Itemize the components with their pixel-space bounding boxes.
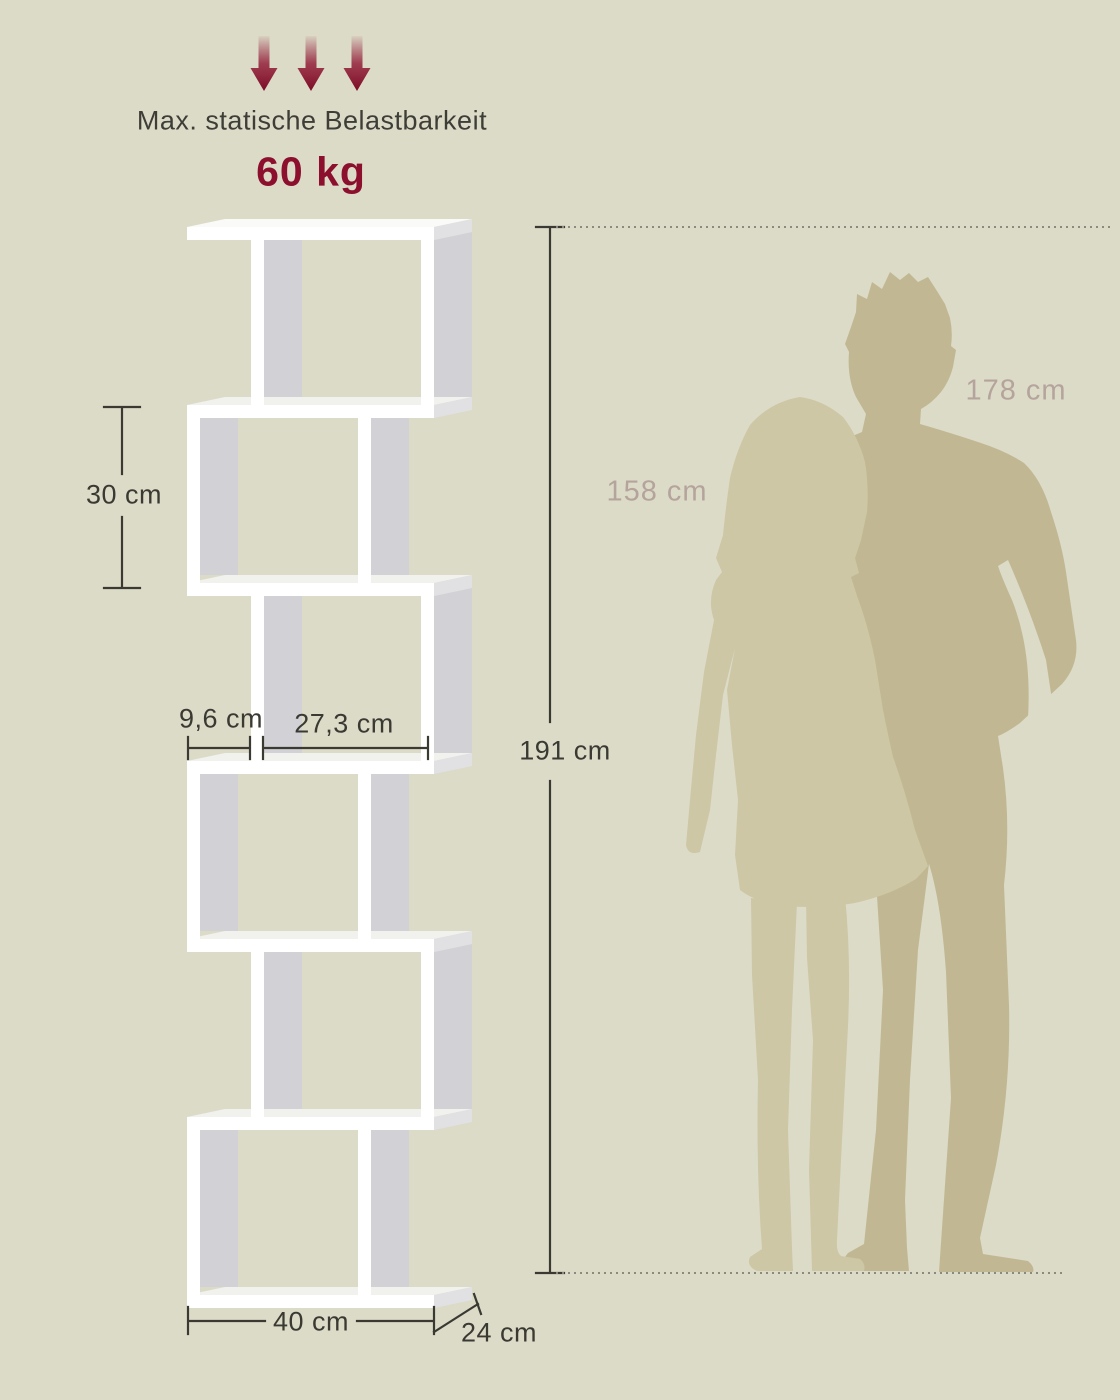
down-arrow-icon [251, 36, 278, 91]
man-height-label: 178 cm [965, 377, 1066, 406]
infographic-graphics [0, 0, 1120, 1400]
right-section-width-label: 27,3 cm [294, 711, 394, 738]
total-width-label: 40 cm [273, 1309, 349, 1336]
tier-height-label: 30 cm [86, 482, 162, 509]
load-arrows-icon [251, 36, 371, 91]
total-height-label: 191 cm [519, 738, 611, 765]
product-dimension-infographic: Max. statische Belastbarkeit 60 kg 30 cm… [0, 0, 1120, 1400]
max-load-label: Max. statische Belastbarkeit [137, 108, 487, 135]
left-section-width-label: 9,6 cm [179, 706, 263, 733]
down-arrow-icon [344, 36, 371, 91]
bookshelf-illustration [187, 219, 472, 1308]
max-load-value: 60 kg [256, 152, 366, 193]
depth-label: 24 cm [461, 1320, 537, 1347]
woman-height-label: 158 cm [606, 478, 707, 507]
down-arrow-icon [298, 36, 325, 91]
